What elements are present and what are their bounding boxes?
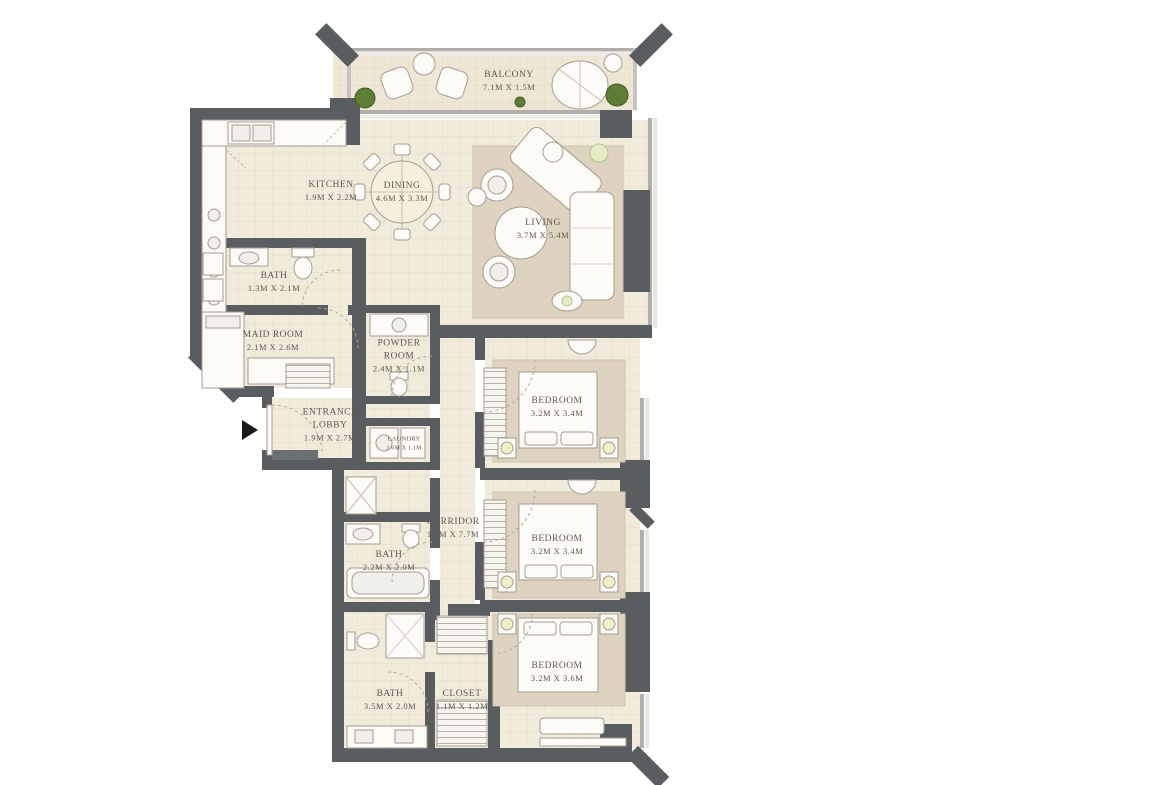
lamp-icon <box>501 618 513 630</box>
ottoman-detail <box>562 296 572 306</box>
wall <box>190 108 202 356</box>
wall <box>480 600 626 612</box>
plant-icon <box>590 144 608 162</box>
bedroom1-window <box>640 398 649 460</box>
plant-icon <box>355 88 375 108</box>
shower-shelf-icon <box>203 253 223 275</box>
side-table-icon <box>543 142 563 162</box>
coffee-table-icon <box>495 207 547 259</box>
wall <box>332 748 632 762</box>
wall <box>352 305 440 313</box>
dining-chair-icon <box>394 229 410 240</box>
lamp-icon <box>501 442 513 454</box>
kitchen-sink-basin <box>232 125 250 141</box>
corridor-floor <box>440 326 475 612</box>
wall <box>332 468 344 760</box>
shoe-bench-icon <box>272 450 318 460</box>
stove-burner-icon <box>208 237 220 249</box>
dining-chair-icon <box>354 184 365 200</box>
wall <box>475 330 485 360</box>
wall <box>448 604 490 616</box>
stove-burner-icon <box>208 209 220 221</box>
wall <box>425 612 435 642</box>
dining-set-icon <box>354 144 450 240</box>
toilet-icon <box>357 633 379 649</box>
sink-basin <box>239 252 259 264</box>
wall <box>430 420 440 468</box>
plant-icon <box>515 97 525 107</box>
dresser-icon <box>540 738 626 746</box>
sofa-icon <box>570 192 614 300</box>
maid-table-icon <box>286 364 330 388</box>
wall <box>622 640 650 692</box>
wall <box>332 602 432 612</box>
entrance-lobby-floor <box>272 398 352 458</box>
wall-diagonal <box>627 746 669 785</box>
entrance-arrow-icon <box>242 420 258 440</box>
wall <box>430 310 440 398</box>
bench-icon <box>540 718 604 734</box>
floor-plan-page: BALCONY 7.1M X 1.5M KITCHEN 1.9M X 2.2M … <box>0 0 1170 785</box>
pillow-icon <box>561 565 593 578</box>
lamp-icon <box>603 618 615 630</box>
wardrobe-icon <box>437 616 487 654</box>
toilet-tank-icon <box>292 248 314 257</box>
pillow-icon <box>206 316 240 328</box>
pillow-icon <box>525 432 557 445</box>
side-table-icon <box>468 188 486 206</box>
toilet-icon <box>403 530 419 548</box>
bedroom3-window <box>640 694 649 748</box>
sink-basin <box>355 730 373 743</box>
wall <box>600 110 632 138</box>
lamp-icon <box>603 442 615 454</box>
toilet-icon <box>391 378 407 396</box>
wall <box>440 325 652 338</box>
living-balcony-sliding-door <box>360 110 600 119</box>
pillow-icon <box>561 432 593 445</box>
toilet-tank-icon <box>347 632 355 650</box>
dryer-icon <box>401 428 425 458</box>
bathtub-inner <box>352 572 424 594</box>
pillow-icon <box>525 565 557 578</box>
pillow-icon <box>560 622 592 635</box>
lamp-icon <box>501 576 513 588</box>
plant-icon <box>606 84 628 106</box>
entrance-door-leaf <box>267 405 272 455</box>
sink-basin <box>353 528 373 540</box>
shower-shelf-icon <box>203 279 223 301</box>
kitchen-sink-basin <box>253 125 271 141</box>
dining-chair-icon <box>439 184 450 200</box>
wall <box>362 418 440 426</box>
wall <box>622 190 650 292</box>
toilet-icon <box>294 257 312 279</box>
floor-plan-drawing <box>0 0 1170 785</box>
wall <box>362 396 440 404</box>
armchair-seat <box>490 263 508 281</box>
balcony-side-table-icon <box>604 54 622 72</box>
dining-chair-icon <box>394 144 410 155</box>
wall <box>362 462 440 470</box>
wardrobe-icon <box>437 700 487 746</box>
bedroom2-window <box>640 530 649 592</box>
sink-basin <box>392 318 406 332</box>
wall <box>352 238 366 470</box>
lamp-icon <box>603 576 615 588</box>
sink-basin <box>395 730 413 743</box>
wall <box>480 468 626 480</box>
washer-drum <box>376 435 392 451</box>
wall-diagonal <box>629 23 673 67</box>
armchair-seat <box>488 176 506 194</box>
balcony-table-icon <box>413 53 435 75</box>
